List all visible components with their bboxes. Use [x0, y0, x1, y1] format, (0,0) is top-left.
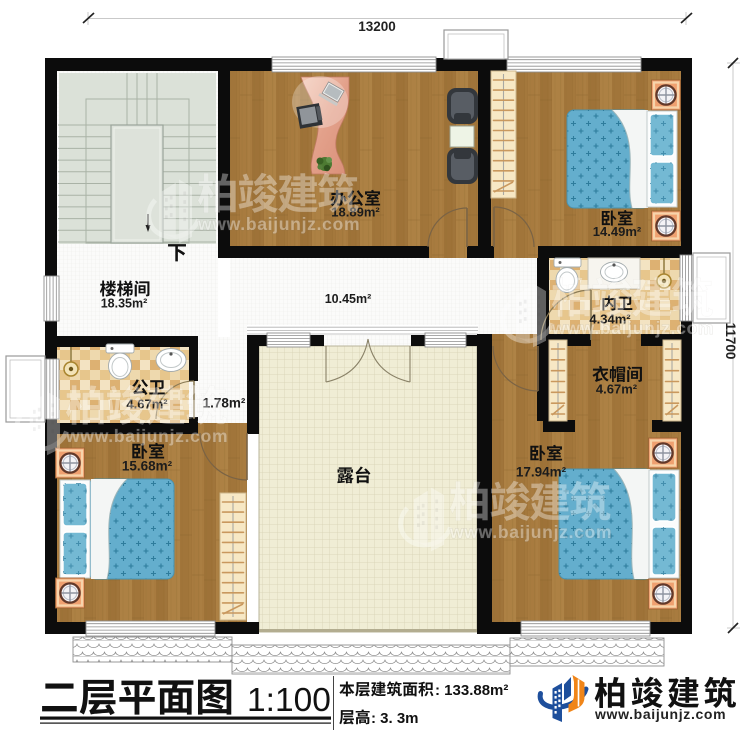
svg-text:13200: 13200: [358, 19, 396, 34]
svg-text:14.49m²: 14.49m²: [593, 224, 642, 239]
svg-text:: 3. 3m: : 3. 3m: [371, 710, 419, 727]
svg-text:www.baijunjz.com: www.baijunjz.com: [65, 426, 228, 446]
svg-text:1:100: 1:100: [247, 682, 331, 719]
svg-text:11700: 11700: [723, 323, 738, 360]
svg-text:www.baijunjz.com: www.baijunjz.com: [197, 214, 360, 234]
svg-text:www.baijunjz.com: www.baijunjz.com: [551, 318, 714, 338]
svg-text:4.67m²: 4.67m²: [596, 382, 638, 397]
svg-text:10.45m²: 10.45m²: [325, 292, 372, 306]
svg-text:17.94m²: 17.94m²: [516, 465, 567, 480]
svg-text:18.35m²: 18.35m²: [101, 296, 148, 310]
svg-text:www.baijunjz.com: www.baijunjz.com: [449, 522, 612, 542]
svg-text:15.68m²: 15.68m²: [122, 459, 173, 474]
svg-text:www.baijunjz.com: www.baijunjz.com: [594, 706, 726, 722]
svg-text:: 133.88m²: : 133.88m²: [435, 682, 508, 699]
